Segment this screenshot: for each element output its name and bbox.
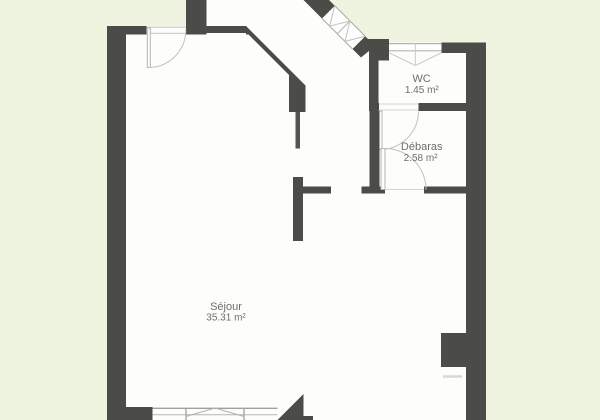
svg-text:Débaras: Débaras [401, 141, 443, 153]
svg-text:35.31 m²: 35.31 m² [206, 313, 246, 324]
svg-text:WC: WC [412, 73, 430, 85]
svg-text:Séjour: Séjour [210, 301, 242, 313]
svg-text:1.45 m²: 1.45 m² [405, 85, 440, 96]
svg-text:2.58 m²: 2.58 m² [404, 153, 439, 164]
